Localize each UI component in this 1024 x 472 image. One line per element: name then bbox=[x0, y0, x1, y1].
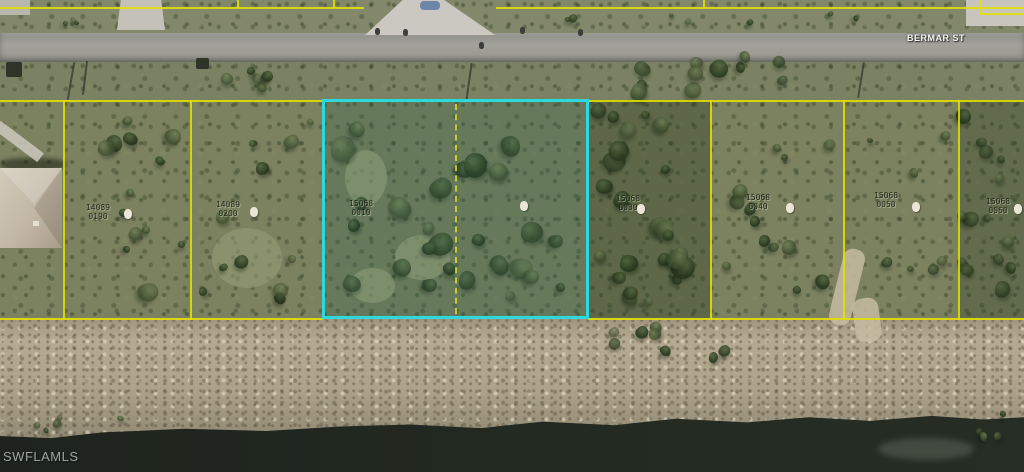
parcel-label-highlighted: 15068 0010 bbox=[337, 199, 385, 217]
parcel-lot: 0010 bbox=[351, 208, 370, 217]
water-reflection bbox=[878, 438, 974, 460]
survey-marker-dot bbox=[912, 202, 920, 212]
parcel-boundary-line bbox=[0, 7, 364, 9]
parcel-label: 15068 0050 bbox=[862, 191, 910, 209]
vegetation-clump bbox=[649, 328, 661, 340]
aerial-parcel-photo: 14089 0190 14089 0200 15068 0010 15068 0… bbox=[0, 0, 1024, 472]
parcel-lot: 0030 bbox=[618, 203, 637, 212]
vegetation-clump bbox=[853, 15, 858, 21]
parcel-block: 15068 bbox=[616, 194, 640, 203]
roadside-object bbox=[578, 29, 583, 36]
roadside-object bbox=[375, 28, 380, 35]
parcel-boundary-line bbox=[333, 0, 335, 8]
parcel-boundary-line bbox=[190, 100, 192, 320]
parcel-block: 14089 bbox=[86, 203, 110, 212]
parcel-lot: 0190 bbox=[88, 212, 107, 221]
survey-marker-dot bbox=[124, 209, 132, 219]
dark-object bbox=[6, 62, 22, 77]
roadside-object bbox=[403, 29, 408, 36]
parcel-lot: 0050 bbox=[876, 200, 895, 209]
survey-marker-dot bbox=[1014, 204, 1022, 214]
driveway-left bbox=[117, 0, 165, 30]
parcel-label: 14089 0200 bbox=[204, 200, 252, 218]
parcel-label: 15068 0040 bbox=[734, 193, 782, 211]
parcel-boundary-line bbox=[63, 100, 65, 320]
parcel-boundary-line bbox=[0, 100, 323, 102]
blue-object bbox=[420, 1, 440, 10]
road-shoulder bbox=[0, 62, 1024, 102]
parcel-boundary-line bbox=[980, 13, 1024, 15]
house-detail bbox=[33, 221, 39, 226]
parcel-block: 15068 bbox=[986, 197, 1010, 206]
bermar-street-road bbox=[0, 33, 1024, 63]
survey-marker-dot bbox=[520, 201, 528, 211]
parcel-boundary-line bbox=[496, 7, 1024, 9]
parcel-block: 14089 bbox=[216, 200, 240, 209]
parcel-boundary-line bbox=[0, 318, 323, 320]
parcel-boundary-line bbox=[237, 0, 239, 8]
survey-marker-dot bbox=[250, 207, 258, 217]
parcel-lot: 0040 bbox=[748, 202, 767, 211]
survey-marker-dot bbox=[637, 204, 645, 214]
parcel-boundary-line bbox=[958, 100, 960, 320]
dark-object bbox=[196, 58, 209, 69]
parcel-label: 14089 0190 bbox=[74, 203, 122, 221]
parcel-lot: 0060 bbox=[988, 206, 1007, 215]
house-roof bbox=[0, 168, 62, 248]
roadside-object bbox=[479, 42, 484, 49]
parcel-block: 15068 bbox=[746, 193, 770, 202]
parcel-boundary-line bbox=[703, 0, 705, 8]
survey-marker-dot bbox=[786, 203, 794, 213]
roadside-object bbox=[520, 27, 525, 34]
mls-watermark: SWFLAMLS bbox=[3, 449, 79, 464]
interior-lot-line bbox=[455, 104, 457, 314]
parcel-block: 15068 bbox=[349, 199, 373, 208]
parcel-boundary-line bbox=[843, 100, 845, 320]
parcel-boundary-line bbox=[710, 100, 712, 320]
parcel-lot: 0200 bbox=[218, 209, 237, 218]
street-name-label: BERMAR ST bbox=[901, 33, 971, 43]
vegetation-clump bbox=[983, 214, 990, 222]
parcel-block: 15068 bbox=[874, 191, 898, 200]
parcel-boundary-line bbox=[980, 0, 982, 14]
